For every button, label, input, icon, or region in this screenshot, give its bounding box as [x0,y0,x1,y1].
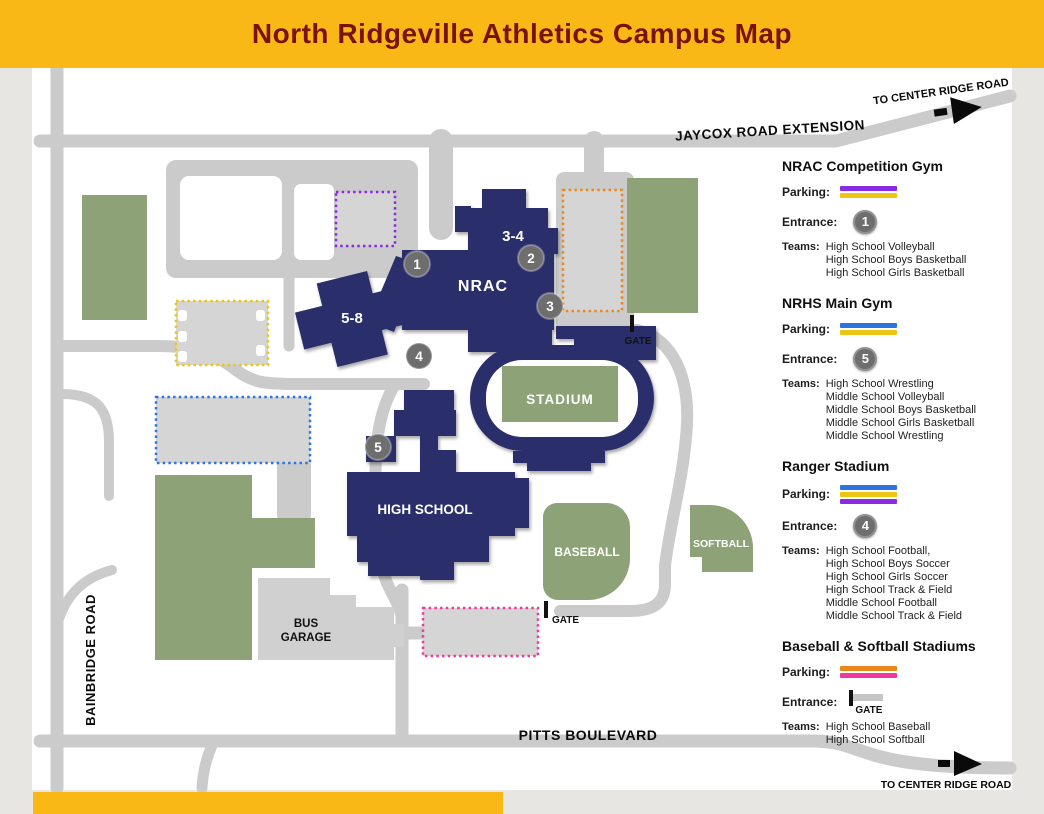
team-item: High School Boys Soccer [826,558,962,571]
legend-panel: NRAC Competition Gym Parking: Entrance: … [782,158,1018,762]
parking-color-bar [840,673,897,678]
page-title: North Ridgeville Athletics Campus Map [252,18,792,50]
entrance-label: Entrance: [782,519,837,533]
footer-band [33,792,503,814]
label-baseball: BASEBALL [554,545,619,559]
legend-section-ranger-stadium: Ranger Stadium Parking: Entrance: 4 Team… [782,458,1018,623]
legend-section-title: NRAC Competition Gym [782,158,1018,174]
legend-section-title: Baseball & Softball Stadiums [782,638,1018,654]
parking-lot-pink [423,608,538,656]
marker-3: 3 [537,293,563,319]
teams-list: High School Football, High School Boys S… [826,545,962,623]
building-hs-neck [420,434,438,476]
marker-4: 4 [406,343,432,369]
parking-color-bar [840,485,897,490]
marker-number: 2 [527,251,535,266]
nrac-gate-label: GATE [624,336,651,347]
team-item: High School Track & Field [826,584,962,597]
campus-map-page: 3-4 NRAC 5-8 STADIUM HIGH SCHOOL BASEBAL… [0,0,1044,814]
field-northeast [627,178,698,313]
legend-section-title: Ranger Stadium [782,458,1018,474]
parking-row: Parking: [782,484,1018,504]
parking-color-bar [840,186,897,191]
label-58: 5-8 [341,310,363,327]
parking-color-bar [840,492,897,497]
teams-label: Teams: [782,721,820,747]
parking-color-bar [840,499,897,504]
header-band: North Ridgeville Athletics Campus Map [0,0,1044,68]
teams-row: Teams: High School Baseball High School … [782,721,1018,747]
marker-number: 5 [374,440,382,455]
road-island [180,176,282,260]
label-bainbridge: BAINBRIDGE ROAD [83,594,98,726]
parking-color-bar [840,193,897,198]
parking-lot-yellow [176,301,268,365]
gate-icon: GATE [849,689,883,714]
building-hs-wing2 [394,410,456,436]
stall-notch [178,310,187,321]
label-garage: GARAGE [281,632,332,644]
entrance-row: Entrance: 1 [782,209,1018,234]
parking-label: Parking: [782,322,830,336]
parking-row: Parking: [782,321,1018,337]
parking-lot-purple [336,192,395,246]
entrance-label: Entrance: [782,695,837,709]
label-stadium: STADIUM [526,392,594,407]
parking-color-bar [840,323,897,328]
entrance-row: Entrance: GATE [782,689,1018,714]
parking-lot-orange [563,190,622,311]
building-hs-south3 [420,560,454,580]
stall-notch [256,310,265,321]
team-item: High School Girls Basketball [826,267,967,280]
marker-5: 5 [365,434,391,460]
teams-row: Teams: High School Wrestling Middle Scho… [782,378,1018,443]
label-nrac: NRAC [458,278,508,295]
gate-bar-icon [853,694,883,701]
label-pitts: PITTS BOULEVARD [519,727,658,743]
label-34: 3-4 [502,228,524,245]
parking-label: Parking: [782,185,830,199]
parking-color-bar [840,666,897,671]
field-northwest [82,195,147,320]
label-bus: BUS [294,618,319,630]
team-item: High School Volleyball [826,241,967,254]
marker-number: 4 [415,349,423,364]
stadium-steps1 [513,451,605,463]
parking-color-bar [840,330,897,335]
team-item: Middle School Boys Basketball [826,404,976,417]
teams-label: Teams: [782,545,820,623]
teams-row: Teams: High School Volleyball High Schoo… [782,241,1018,280]
legend-section-main-gym: NRHS Main Gym Parking: Entrance: 5 Teams… [782,295,1018,443]
teams-list: High School Wrestling Middle School Voll… [826,378,976,443]
teams-list: High School Volleyball High School Boys … [826,241,967,280]
nrac-gate-icon [630,315,634,332]
parking-color-swatch [840,323,897,335]
stall-notch [256,345,265,356]
entrance-label: Entrance: [782,352,837,366]
team-item: Middle School Volleyball [826,391,976,404]
entrance-row: Entrance: 5 [782,346,1018,371]
entrance-label: Entrance: [782,215,837,229]
marker-number: 3 [546,299,554,314]
teams-row: Teams: High School Football, High School… [782,545,1018,623]
building-hs-south1 [357,534,489,562]
parking-lot-blue [156,397,310,463]
team-item: Middle School Wrestling [826,430,976,443]
parking-label: Parking: [782,665,830,679]
entrance-marker-4: 4 [853,514,877,538]
entrance-marker-5: 5 [853,347,877,371]
legend-section-baseball-softball: Baseball & Softball Stadiums Parking: En… [782,638,1018,747]
parking-label: Parking: [782,487,830,501]
stall-notch [178,331,187,342]
team-item: High School Girls Soccer [826,571,962,584]
marker-2: 2 [518,245,544,271]
entrance-row: Entrance: 4 [782,513,1018,538]
road-loop-islands [180,176,334,260]
teams-label: Teams: [782,241,820,280]
south-gate-label: GATE [552,615,579,626]
label-to-center-ridge-bottom: TO CENTER RIDGE ROAD [881,779,1012,791]
team-item: High School Softball [826,734,931,747]
legend-section-title: NRHS Main Gym [782,295,1018,311]
team-item: Middle School Track & Field [826,610,962,623]
team-item: High School Wrestling [826,378,976,391]
legend-section-nrac-gym: NRAC Competition Gym Parking: Entrance: … [782,158,1018,280]
stadium-steps2 [527,462,591,471]
south-gate-icon [544,601,548,618]
teams-list: High School Baseball High School Softbal… [826,721,931,747]
teams-label: Teams: [782,378,820,443]
marker-1: 1 [404,251,430,277]
entrance-marker-1: 1 [853,210,877,234]
parking-color-swatch [840,186,897,198]
road-island [294,184,334,260]
team-item: High School Boys Basketball [826,254,967,267]
team-item: Middle School Girls Basketball [826,417,976,430]
parking-color-swatch [840,485,897,504]
gate-icon-label: GATE [855,705,882,716]
parking-color-swatch [840,666,897,678]
team-item: Middle School Football [826,597,962,610]
label-softball: SOFTBALL [693,538,750,550]
building-hs-east [497,478,529,528]
label-high-school: HIGH SCHOOL [377,502,472,517]
stall-notch [178,351,187,362]
marker-number: 1 [413,257,421,272]
parking-row: Parking: [782,184,1018,200]
parking-row: Parking: [782,664,1018,680]
team-item: High School Baseball [826,721,931,734]
team-item: High School Football, [826,545,962,558]
